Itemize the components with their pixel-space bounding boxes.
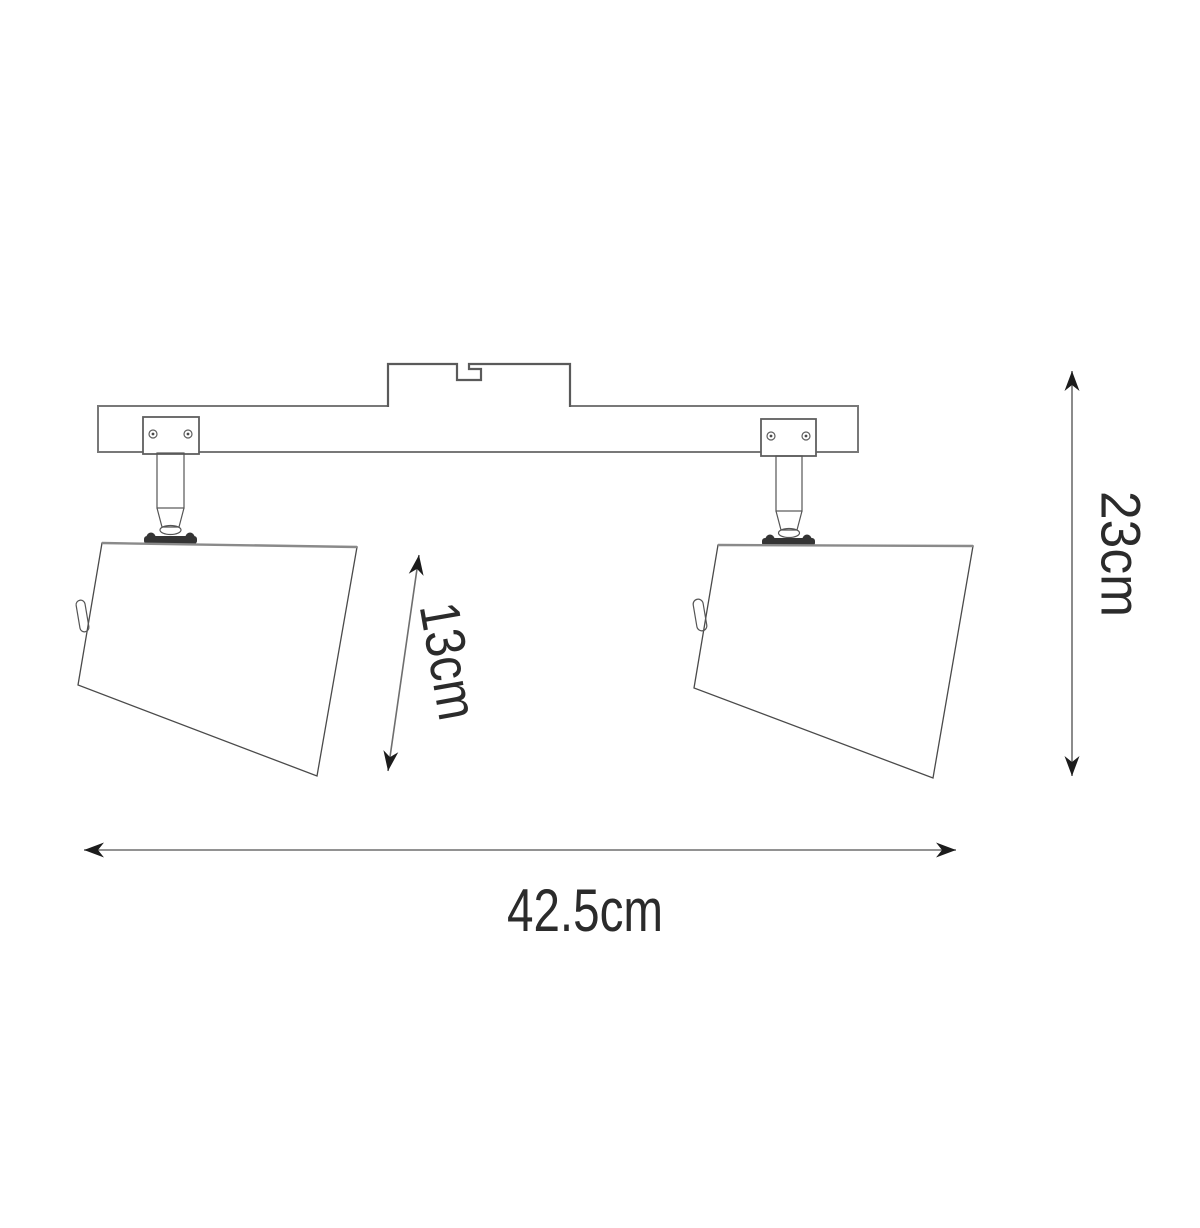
width-dimension-label: 42.5cm xyxy=(507,877,663,944)
ceiling-bar-body xyxy=(98,406,858,452)
right-lamp-shade xyxy=(692,545,973,778)
right-mount-bracket xyxy=(761,419,816,456)
stem-taper xyxy=(776,511,802,530)
stem-taper xyxy=(157,508,184,527)
dimension-drawing-page: 42.5cm 23cm 13cm xyxy=(0,0,1200,1228)
stem-tube xyxy=(776,456,802,511)
width-dimension: 42.5cm xyxy=(84,850,956,944)
shade-height-dimension-label: 13cm xyxy=(408,597,491,724)
screw-dot xyxy=(152,433,155,436)
shade-height-dimension: 13cm xyxy=(388,555,490,771)
left-stem-assembly xyxy=(144,453,197,549)
height-dimension: 23cm xyxy=(1072,371,1153,776)
right-stem-assembly xyxy=(762,456,815,551)
spotlight-dimension-drawing: 42.5cm 23cm 13cm xyxy=(0,0,1200,1228)
screw-dot xyxy=(770,435,773,438)
shade-outline xyxy=(694,545,973,778)
ceiling-bar xyxy=(98,406,858,452)
left-lamp-shade xyxy=(75,543,357,776)
stem-tube xyxy=(157,453,184,508)
shade-height-dimension-arrow xyxy=(388,555,419,771)
screw-dot xyxy=(187,433,190,436)
canopy-outline-with-keyhole-slot xyxy=(388,364,570,407)
shade-top-rim xyxy=(718,545,973,546)
height-dimension-label: 23cm xyxy=(1090,491,1153,617)
screw-dot xyxy=(805,435,808,438)
canopy-box xyxy=(388,364,570,407)
shade-outline xyxy=(78,543,357,776)
left-mount-bracket xyxy=(143,417,199,454)
